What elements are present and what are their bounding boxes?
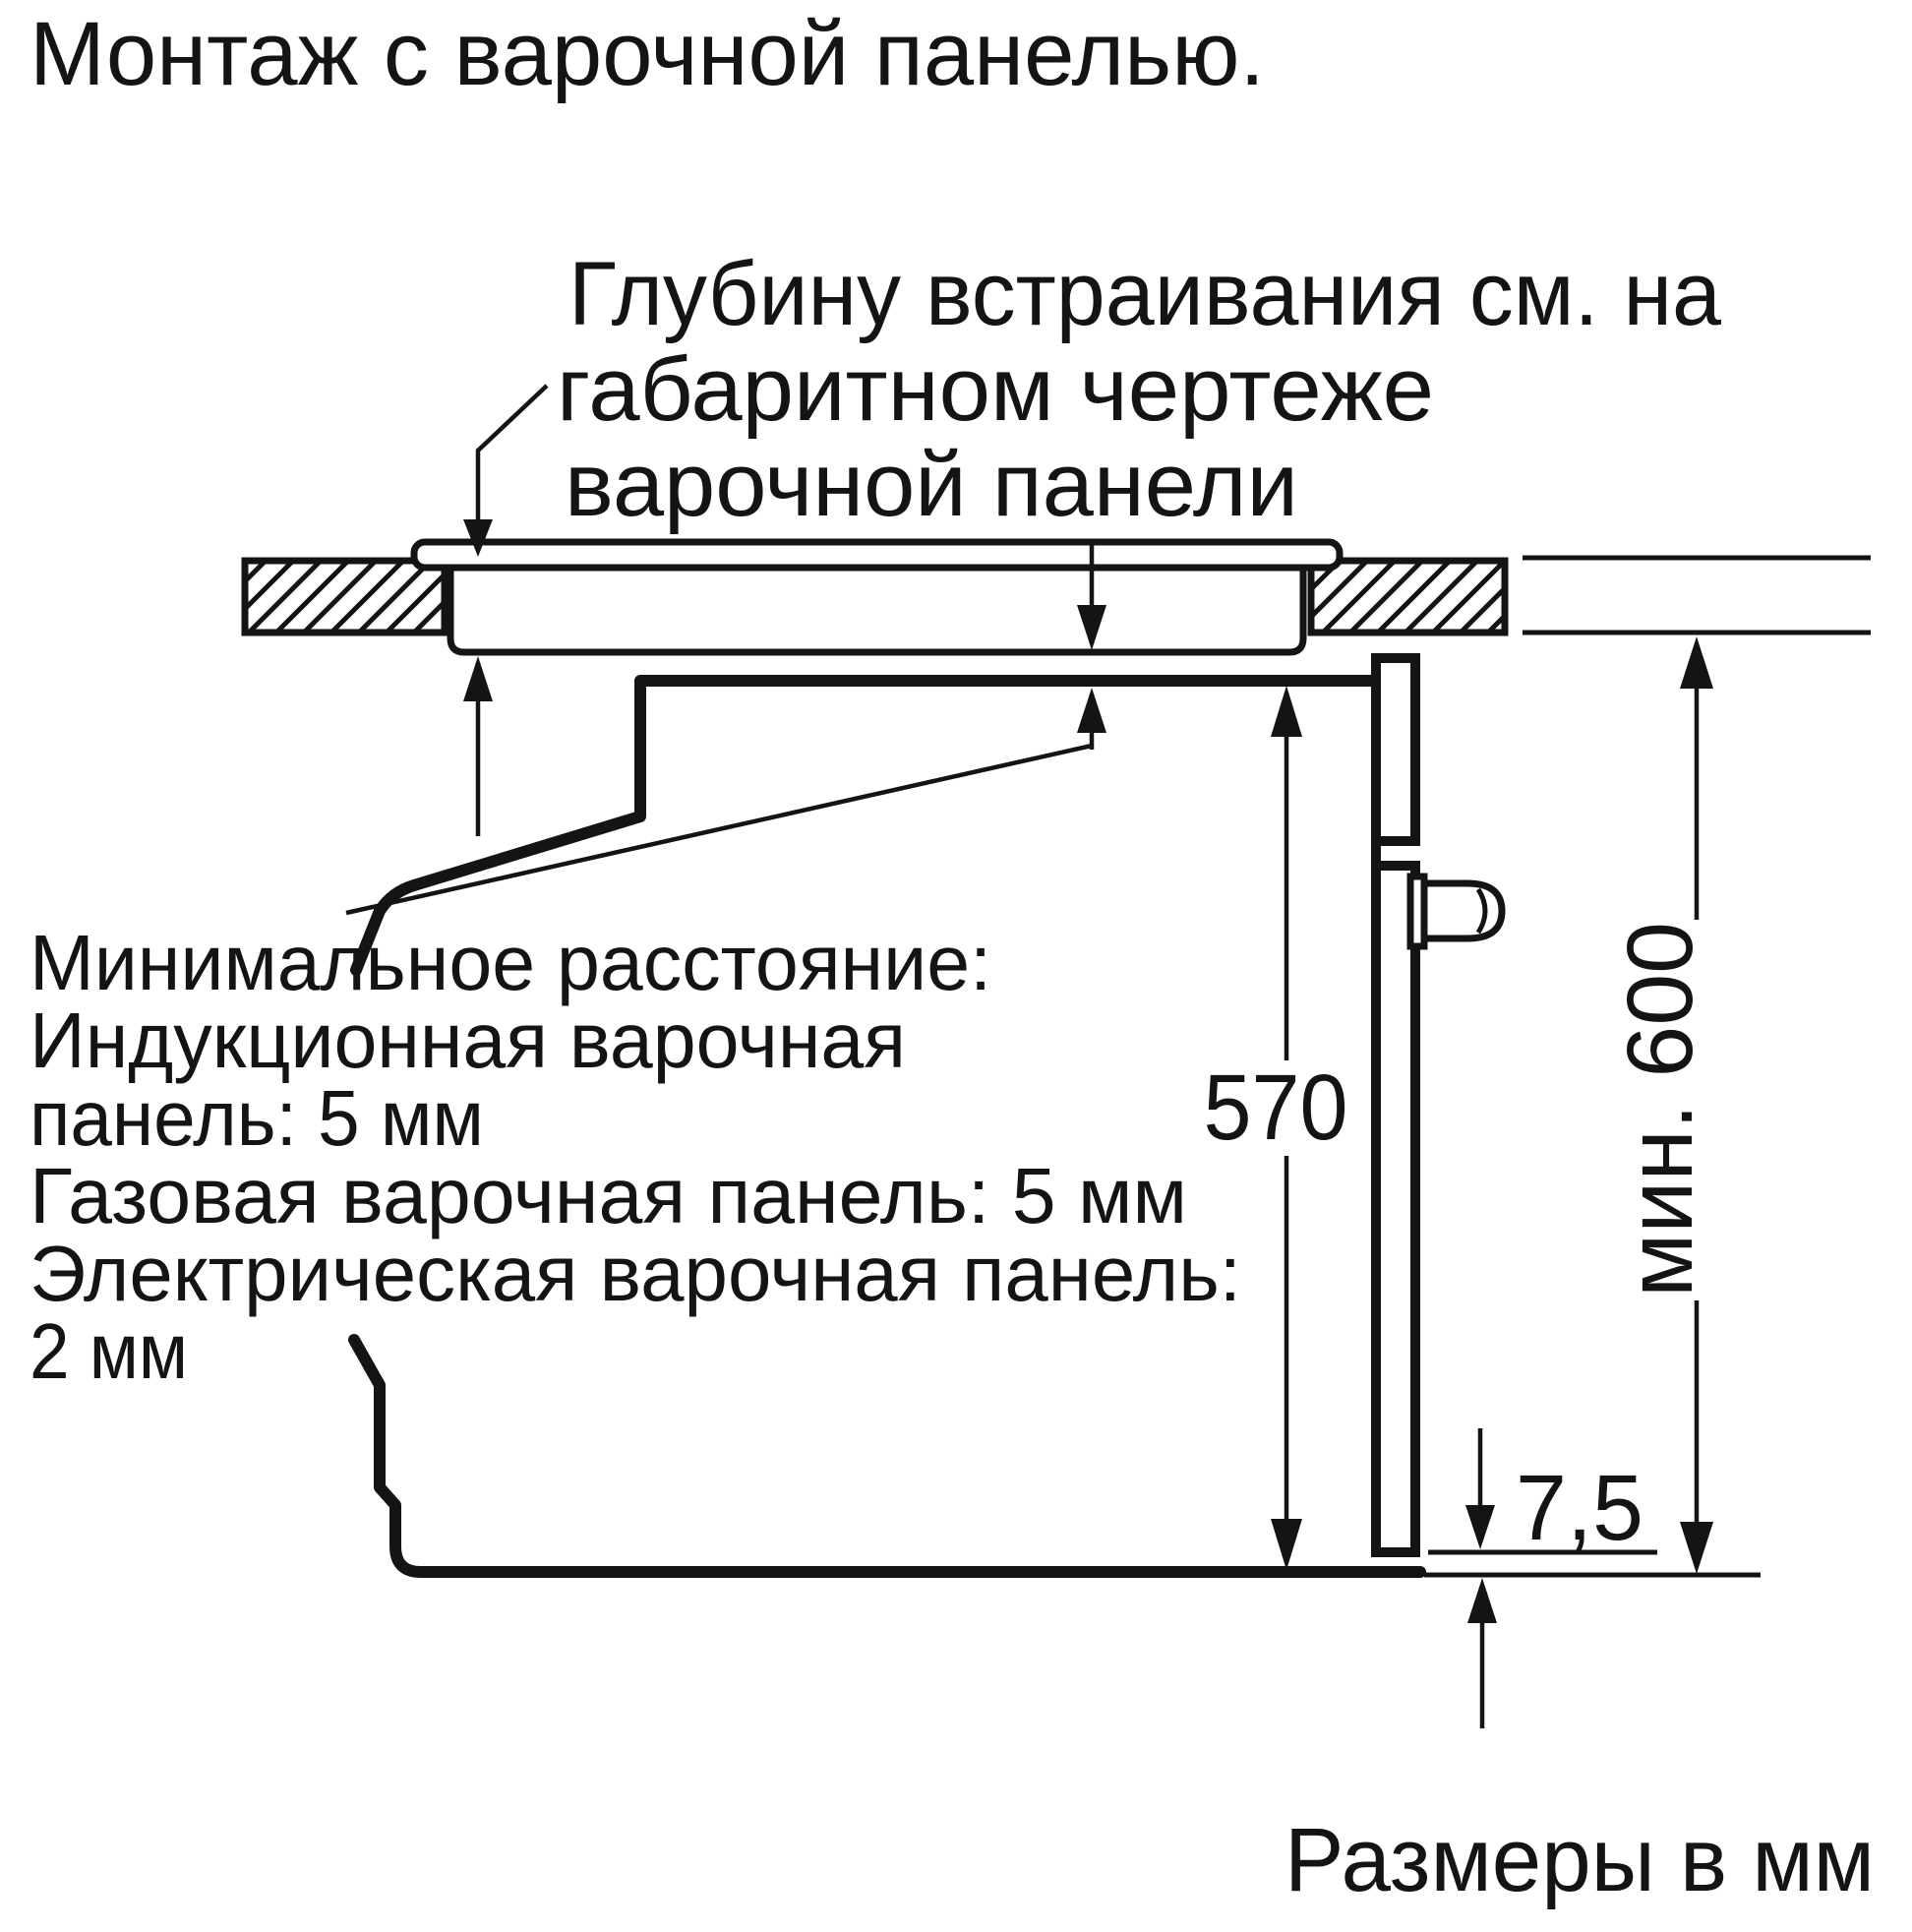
note-line-1: Минимальное расстояние: (30, 919, 991, 1006)
dimension-label-570: 570 (1204, 1056, 1348, 1160)
callout-line-2: габаритном чертеже (557, 339, 1434, 440)
note-line-3: панель: 5 мм (30, 1074, 484, 1162)
oven-door-upper-panel (1376, 658, 1415, 841)
note-line-5: Электрическая варочная панель: (30, 1230, 1241, 1317)
cooktop-rim (414, 542, 1340, 568)
note-line-6: 2 мм (30, 1307, 188, 1395)
installation-drawing-page: Монтаж с варочной панелью. Глубину встра… (0, 0, 1912, 1932)
cooktop-body (450, 557, 1303, 652)
installation-diagram: Монтаж с варочной панелью. Глубину встра… (0, 0, 1912, 1932)
dimension-label-min-600: мин. 600 (1608, 922, 1712, 1298)
units-note: Размеры в мм (1285, 1810, 1875, 1910)
cooktop-cross-section (414, 542, 1340, 652)
dimension-label-7-5: 7,5 (1516, 1456, 1643, 1560)
worktop-hatch-left (245, 561, 445, 633)
oven-door-lower-panel (1376, 866, 1415, 1552)
note-line-4: Газовая варочная панель: 5 мм (30, 1152, 1187, 1239)
callout-line-3: варочной панели (565, 435, 1298, 535)
page-title: Монтаж с варочной панелью. (30, 4, 1265, 104)
note-line-2: Индукционная варочная (30, 996, 906, 1084)
worktop-hatch-right (1311, 561, 1505, 633)
control-knob (1424, 883, 1502, 938)
callout-line-1: Глубину встраивания см. на (568, 244, 1722, 344)
